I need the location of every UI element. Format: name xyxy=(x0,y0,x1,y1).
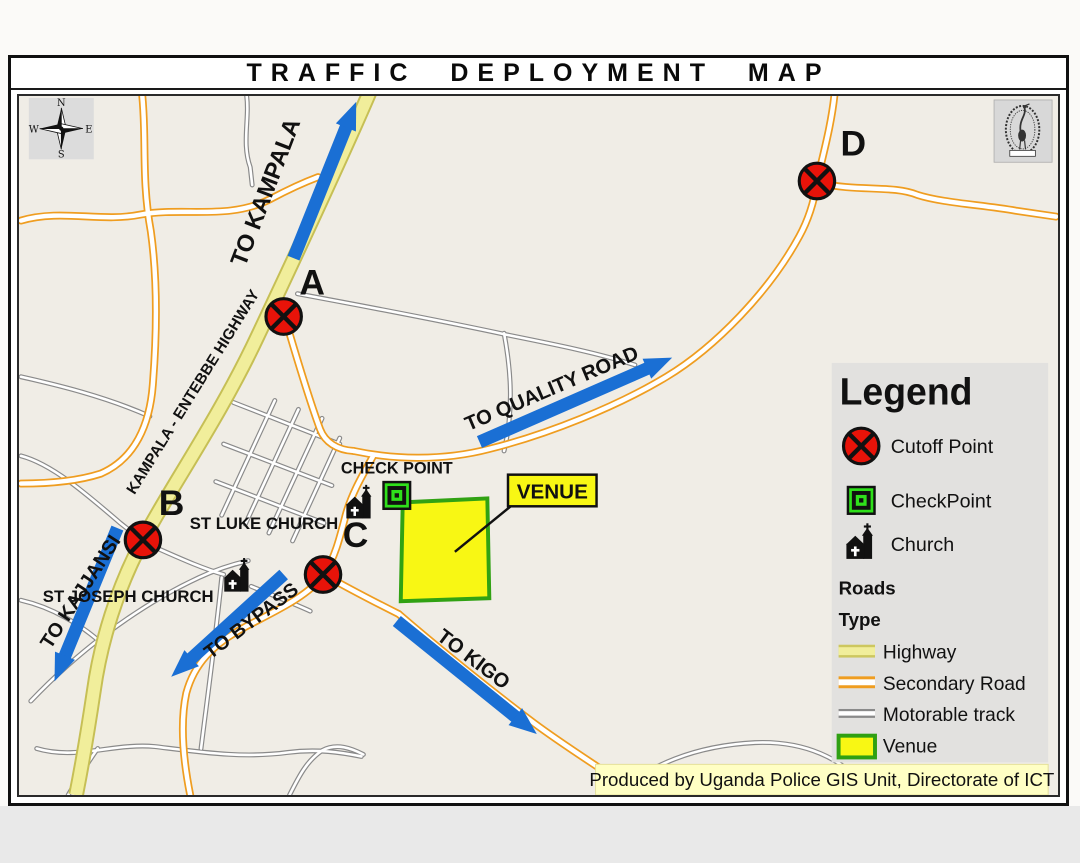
legend-type-header: Type xyxy=(839,609,881,630)
st-luke-church-label: ST LUKE CHURCH xyxy=(190,514,339,533)
attribution-bar: Produced by Uganda Police GIS Unit, Dire… xyxy=(589,764,1054,795)
legend-roads-header: Roads xyxy=(839,577,896,598)
map-area: TO KAMPALA TO KAJJANSI TO BYPASS TO QUAL… xyxy=(17,94,1060,797)
venue-label: VENUE xyxy=(517,480,588,503)
page-title: TRAFFIC DEPLOYMENT MAP xyxy=(247,59,831,88)
legend-checkpoint-label: CheckPoint xyxy=(891,490,992,512)
checkpoint-icon xyxy=(384,482,411,509)
traffic-deployment-map-page: TRAFFIC DEPLOYMENT MAP xyxy=(0,0,1080,863)
to-kampala-arrow xyxy=(294,126,347,258)
legend-cutoff-point-icon xyxy=(844,428,879,464)
cutoff-point-a-icon xyxy=(266,299,301,335)
compass-south-label: S xyxy=(58,149,65,160)
compass-north-label: N xyxy=(57,98,66,109)
map-frame: TRAFFIC DEPLOYMENT MAP xyxy=(8,55,1069,806)
legend-highway-label: Highway xyxy=(883,643,957,664)
compass-west-label: W xyxy=(29,125,40,136)
cutoff-point-b-icon xyxy=(125,522,160,558)
legend-checkpoint-icon xyxy=(848,487,875,514)
legend-church-label: Church xyxy=(891,534,954,556)
legend-venue-label: Venue xyxy=(883,736,937,757)
st-joseph-church-label: ST JOSEPH CHURCH xyxy=(43,587,214,606)
attribution-text: Produced by Uganda Police GIS Unit, Dire… xyxy=(589,769,1054,790)
venue-swatch xyxy=(839,736,875,758)
cutoff-b-label: B xyxy=(159,483,185,523)
legend-title: Legend xyxy=(840,370,973,412)
motorable-track-swatch-fill xyxy=(839,711,875,715)
cutoff-point-d-icon xyxy=(799,163,834,199)
page-bottom-margin xyxy=(0,806,1080,863)
legend-cutoff-point-label: Cutoff Point xyxy=(891,436,994,458)
compass-rose: N E S W xyxy=(29,98,94,160)
cutoff-c-label: C xyxy=(343,515,369,555)
cutoff-d-label: D xyxy=(841,123,867,163)
venue-area xyxy=(401,498,490,601)
title-bar: TRAFFIC DEPLOYMENT MAP xyxy=(11,58,1066,90)
check-point-label: CHECK POINT xyxy=(341,460,453,478)
uganda-police-crest xyxy=(994,100,1052,162)
legend-motorable-track-label: Motorable track xyxy=(883,705,1016,726)
legend-panel: Legend Cutoff Point CheckPoint Church Ro… xyxy=(832,363,1048,762)
cutoff-point-c-icon xyxy=(305,557,340,593)
compass-east-label: E xyxy=(85,125,92,136)
map-canvas: TO KAMPALA TO KAJJANSI TO BYPASS TO QUAL… xyxy=(19,96,1058,795)
cutoff-a-label: A xyxy=(299,263,325,303)
legend-secondary-road-label: Secondary Road xyxy=(883,674,1026,695)
secondary-road-swatch-fill xyxy=(839,679,875,685)
highway-swatch-fill xyxy=(839,647,875,655)
